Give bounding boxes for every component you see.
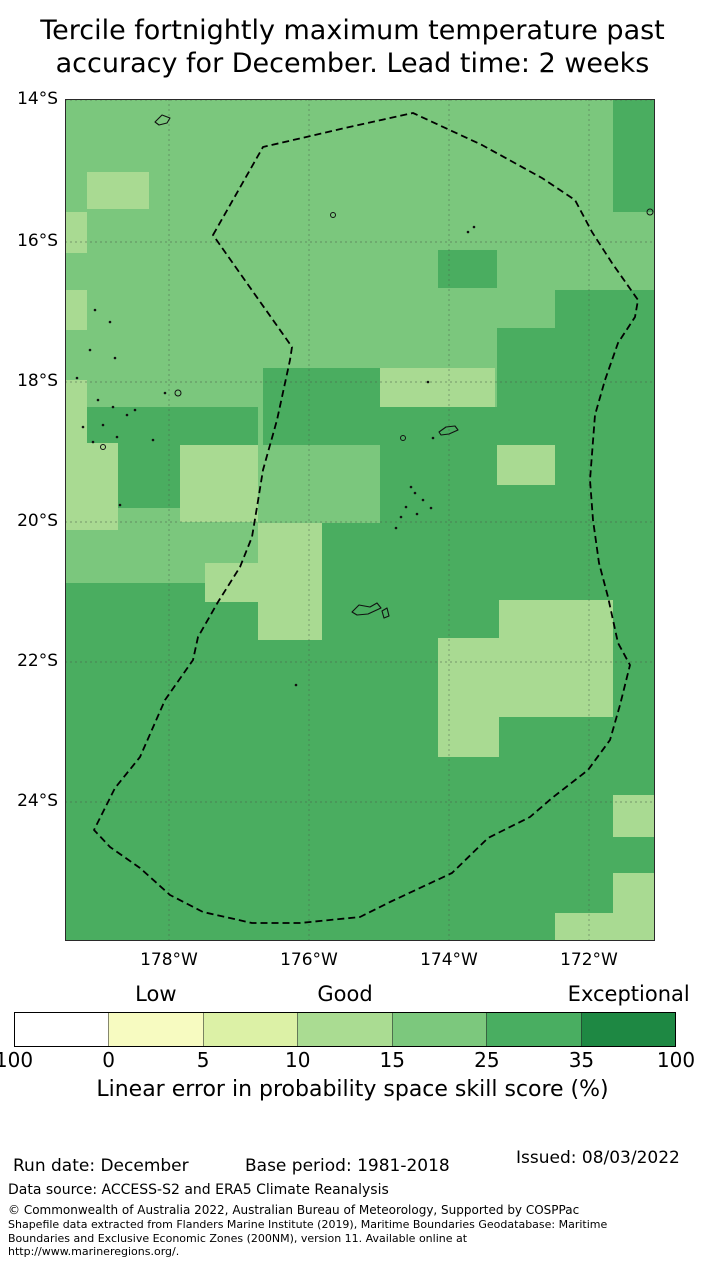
map-patch-dark [613, 100, 655, 212]
island-dot [97, 399, 100, 402]
page-title: Tercile fortnightly maximum temperature … [0, 14, 705, 80]
colorbar-scale-label: Exceptional [539, 982, 705, 1006]
colorbar-caption: Linear error in probability space skill … [0, 1077, 705, 1102]
title-line-1: Tercile fortnightly maximum temperature … [0, 14, 705, 47]
colorbar-segment [392, 1013, 486, 1046]
island-dot [76, 377, 79, 380]
map-patch-light [180, 445, 258, 522]
map-patch-light [87, 172, 149, 209]
map-patch-light [497, 445, 555, 485]
map-patch-light [613, 873, 655, 941]
lon-tick-label: 176°W [267, 950, 351, 970]
map-canvas [65, 99, 655, 941]
colorbar-segment [297, 1013, 391, 1046]
map-patch-dark [87, 407, 258, 445]
colorbar-segment [581, 1013, 675, 1046]
colorbar-tick-label: 25 [451, 1048, 523, 1072]
island-dot [92, 441, 95, 444]
island-dot [82, 426, 85, 429]
colorbar-tick-label: 100 [0, 1048, 50, 1072]
island-dot [126, 414, 129, 417]
colorbar [14, 1012, 676, 1047]
lon-tick-label: 178°W [127, 950, 211, 970]
island-dot [114, 357, 117, 360]
map-patch-light [499, 600, 613, 717]
map-layers [65, 99, 655, 941]
island-dot [410, 486, 413, 489]
issued-date-text: Issued: 08/03/2022 [516, 1148, 680, 1168]
colorbar-tick-label: 0 [73, 1048, 145, 1072]
map-patch-light [555, 913, 613, 941]
copyright-line: © Commonwealth of Australia 2022, Austra… [8, 1203, 607, 1218]
map-panel [65, 99, 655, 941]
map-patch-light [205, 563, 263, 602]
island-dot [430, 507, 433, 510]
map-patch-light [380, 368, 495, 407]
colorbar-segment [15, 1013, 108, 1046]
data-source-text: Data source: ACCESS-S2 and ERA5 Climate … [8, 1182, 389, 1198]
colorbar-tick-label: 15 [356, 1048, 428, 1072]
copyright-line: http://www.marineregions.org/. [8, 1245, 607, 1259]
map-patch-light [65, 380, 87, 443]
lat-tick-label: 22°S [4, 651, 58, 671]
island-dot [109, 321, 112, 324]
lat-tick-label: 14°S [4, 89, 58, 109]
island-dot [422, 499, 425, 502]
island-dot [89, 349, 92, 352]
colorbar-tick-label: 5 [167, 1048, 239, 1072]
map-patch-dark [118, 443, 180, 508]
island-dot [112, 406, 115, 409]
island-dot [295, 684, 298, 687]
lon-tick-label: 174°W [407, 950, 491, 970]
map-patch-light [258, 523, 322, 640]
map-patch-dark [497, 328, 555, 523]
island-dot [152, 439, 155, 442]
island-dot [400, 516, 403, 519]
island-dot [134, 409, 137, 412]
island-dot [414, 492, 417, 495]
island-dot [94, 309, 97, 312]
island-dot [164, 392, 167, 395]
colorbar-segment [108, 1013, 202, 1046]
copyright-line: Boundaries and Exclusive Economic Zones … [8, 1232, 607, 1246]
lat-tick-label: 16°S [4, 231, 58, 251]
island-dot [102, 424, 105, 427]
island-dot [416, 513, 419, 516]
colorbar-tick-label: 35 [545, 1048, 617, 1072]
copyright-line: Shapefile data extracted from Flanders M… [8, 1218, 607, 1232]
run-date-text: Run date: December [13, 1156, 189, 1176]
map-patch-dark [380, 407, 497, 523]
map-patch-dark [555, 290, 655, 523]
colorbar-segment [486, 1013, 580, 1046]
map-patch-light [613, 795, 655, 837]
base-period-text: Base period: 1981-2018 [245, 1156, 450, 1176]
island-dot [473, 226, 476, 229]
map-patch-dark [322, 523, 655, 583]
colorbar-segment [203, 1013, 297, 1046]
colorbar-scale-label: Good [255, 982, 435, 1006]
map-patch-light [65, 290, 87, 330]
lat-tick-label: 18°S [4, 371, 58, 391]
map-patch-dark [438, 250, 497, 288]
map-patch-light [65, 212, 87, 253]
map-patch-light [438, 638, 499, 757]
island-dot [467, 231, 470, 234]
colorbar-tick-label: 10 [262, 1048, 334, 1072]
lat-tick-label: 24°S [4, 791, 58, 811]
island-dot [427, 381, 430, 384]
lat-tick-label: 20°S [4, 511, 58, 531]
colorbar-scale-label: Low [66, 982, 246, 1006]
island-dot [395, 527, 398, 530]
island-dot [116, 436, 119, 439]
island-dot [119, 504, 122, 507]
map-patch-light [65, 443, 118, 530]
lon-tick-label: 172°W [547, 950, 631, 970]
island-dot [432, 437, 435, 440]
title-line-2: accuracy for December. Lead time: 2 week… [0, 47, 705, 80]
island-dot [405, 506, 408, 509]
copyright-block: © Commonwealth of Australia 2022, Austra… [8, 1203, 607, 1259]
figure: Tercile fortnightly maximum temperature … [0, 0, 705, 1275]
colorbar-tick-label: 100 [640, 1048, 705, 1072]
